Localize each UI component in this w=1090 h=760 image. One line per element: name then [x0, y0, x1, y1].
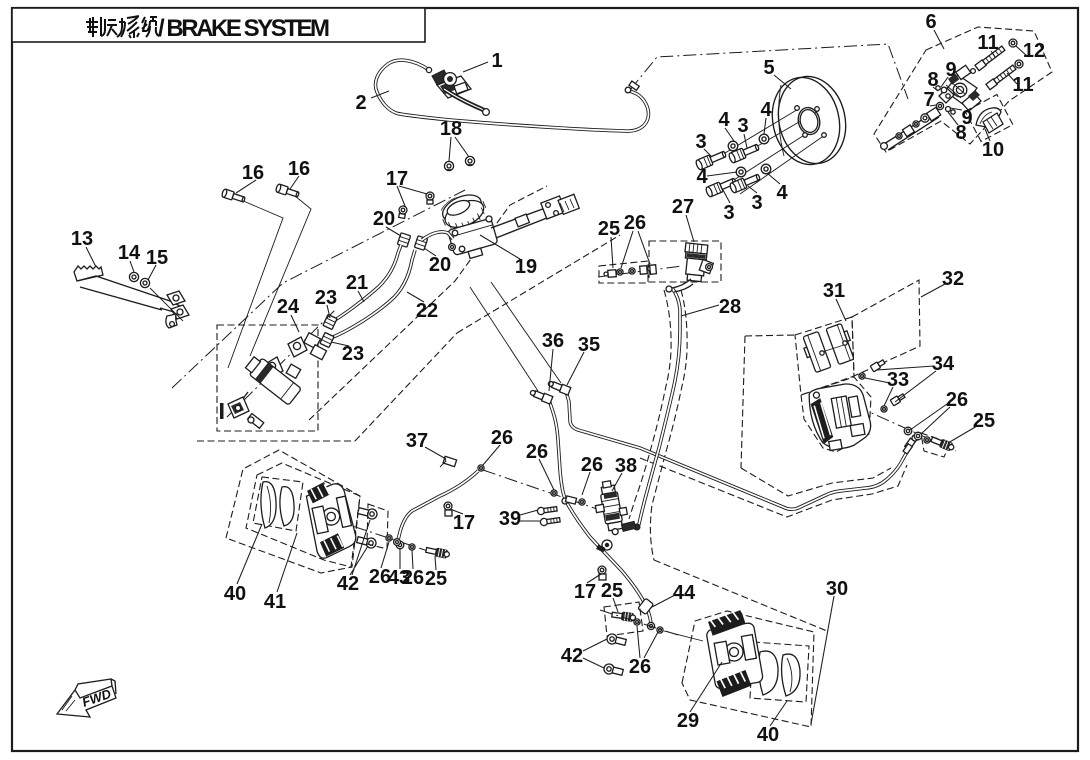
svg-text:11: 11: [1012, 74, 1033, 96]
svg-text:12: 12: [1023, 40, 1045, 62]
svg-text:23: 23: [342, 343, 364, 365]
svg-text:11: 11: [977, 32, 998, 54]
svg-text:27: 27: [672, 196, 694, 218]
svg-text:42: 42: [337, 573, 359, 595]
svg-text:26: 26: [526, 441, 548, 463]
svg-text:3: 3: [751, 192, 762, 214]
svg-text:8: 8: [955, 122, 966, 144]
svg-text:19: 19: [515, 256, 537, 278]
svg-text:32: 32: [942, 268, 964, 290]
svg-text:4: 4: [776, 182, 788, 204]
svg-text:26: 26: [491, 427, 513, 449]
svg-text:25: 25: [973, 410, 995, 432]
svg-text:/ BRAKE SYSTEM: / BRAKE SYSTEM: [158, 15, 330, 42]
svg-text:40: 40: [224, 583, 246, 605]
svg-text:8: 8: [927, 69, 938, 91]
svg-text:3: 3: [737, 115, 748, 137]
svg-text:17: 17: [453, 512, 475, 534]
svg-text:20: 20: [373, 208, 395, 230]
svg-text:23: 23: [315, 287, 337, 309]
svg-text:30: 30: [826, 578, 848, 600]
svg-text:16: 16: [288, 158, 310, 180]
svg-text:3: 3: [723, 202, 734, 224]
svg-text:31: 31: [823, 280, 845, 302]
svg-text:28: 28: [719, 296, 741, 318]
svg-text:15: 15: [146, 247, 168, 269]
svg-text:25: 25: [601, 580, 623, 602]
svg-text:44: 44: [673, 582, 696, 604]
svg-text:6: 6: [925, 11, 936, 33]
svg-text:38: 38: [615, 455, 637, 477]
svg-text:4: 4: [760, 99, 772, 121]
svg-text:35: 35: [578, 334, 600, 356]
svg-text:34: 34: [932, 353, 955, 375]
svg-text:24: 24: [277, 296, 300, 318]
svg-text:13: 13: [71, 228, 93, 250]
svg-text:33: 33: [887, 369, 909, 391]
svg-text:37: 37: [406, 430, 428, 452]
svg-text:2: 2: [355, 92, 366, 114]
svg-text:10: 10: [982, 139, 1004, 161]
svg-text:41: 41: [264, 591, 286, 613]
svg-text:9: 9: [945, 59, 956, 81]
svg-text:5: 5: [763, 57, 774, 79]
svg-text:26: 26: [624, 212, 646, 234]
svg-text:26: 26: [946, 389, 968, 411]
svg-text:16: 16: [242, 162, 264, 184]
svg-text:14: 14: [118, 242, 141, 264]
svg-text:1: 1: [491, 50, 502, 72]
svg-text:39: 39: [499, 508, 521, 530]
svg-text:17: 17: [386, 168, 408, 190]
svg-text:36: 36: [542, 330, 564, 352]
svg-text:26: 26: [402, 567, 424, 589]
svg-text:29: 29: [677, 710, 699, 732]
svg-text:22: 22: [416, 300, 438, 322]
svg-text:18: 18: [440, 118, 462, 140]
svg-text:7: 7: [923, 89, 934, 111]
svg-text:26: 26: [581, 454, 603, 476]
svg-text:25: 25: [598, 218, 620, 240]
svg-text:25: 25: [425, 568, 447, 590]
svg-text:4: 4: [718, 109, 730, 131]
svg-text:4: 4: [696, 166, 708, 188]
svg-text:17: 17: [574, 581, 596, 603]
svg-text:42: 42: [561, 645, 583, 667]
svg-text:21: 21: [346, 272, 368, 294]
svg-text:26: 26: [629, 656, 651, 678]
svg-text:20: 20: [429, 254, 451, 276]
svg-text:3: 3: [695, 131, 706, 153]
svg-text:40: 40: [757, 724, 779, 746]
